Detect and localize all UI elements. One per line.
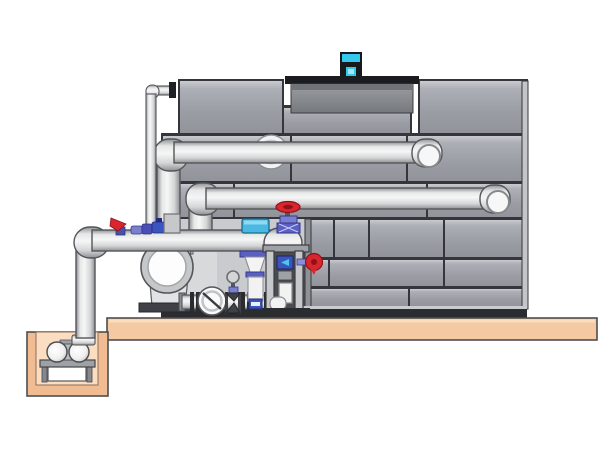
valve-column — [248, 277, 263, 301]
tower-right-trim — [522, 81, 528, 309]
blue-fitting — [142, 224, 152, 234]
pump-cylinder — [47, 342, 67, 362]
actuator-highlight — [244, 221, 267, 225]
base-box-stripe — [251, 302, 260, 306]
check-valve: Swing check valve — [198, 287, 226, 315]
upper-pipe-run — [174, 142, 438, 163]
panel — [445, 220, 522, 257]
flange — [241, 292, 245, 312]
shroud-inner-shadow — [291, 84, 413, 90]
instrument-stand: Instrument stand with flow device — [262, 245, 310, 314]
panel — [370, 220, 443, 257]
makeup-flange — [169, 82, 176, 98]
small-gate-valve: Small gate valve with handwheel — [225, 271, 241, 314]
platform: Equipment platform slab — [107, 318, 597, 340]
makeup-vertical — [146, 94, 156, 226]
panel — [310, 220, 333, 257]
valve-flange-bottom — [246, 272, 264, 277]
sump-pump: Submersible sump pump on stand — [40, 340, 95, 382]
panel — [445, 260, 522, 286]
pipe-bracket — [164, 214, 180, 233]
platform-highlight — [109, 320, 595, 323]
fan-motor: Cyan fan motor — [340, 52, 362, 80]
stand-leg — [87, 366, 92, 382]
panel — [420, 81, 522, 133]
panel — [330, 260, 443, 286]
fan-assembly: Fan shroud on tower deck Cyan fan motor — [285, 52, 419, 113]
panel — [410, 289, 522, 306]
side-handwheel-hub — [311, 259, 317, 265]
upper-elbow-face — [418, 145, 440, 167]
suction-downcomer — [76, 250, 95, 338]
illustration-canvas: Cooling tower casing with panel walls — [0, 0, 600, 450]
lower-pipe-run — [206, 188, 488, 209]
motor-top-band — [342, 54, 360, 62]
stand-base — [262, 308, 310, 314]
red-gate-valve: Gate valve with red handwheel — [276, 202, 300, 234]
pump-inlet-face — [148, 248, 186, 286]
shroud-rim — [285, 76, 419, 84]
flange — [190, 292, 194, 312]
stand-gauge-box — [278, 271, 292, 280]
lower-elbow-face — [487, 191, 509, 213]
stand-leg — [42, 366, 47, 382]
sump-pit: Sump pit Submersible sump pump on stand — [27, 332, 108, 396]
panel — [180, 81, 282, 133]
red-handwheel-hub — [283, 205, 293, 209]
purple-fitting — [131, 226, 142, 234]
motor-center-hi — [348, 69, 354, 74]
pump-stand-shelf — [48, 366, 86, 381]
valve-bonnet — [229, 287, 238, 293]
stand-top-plate — [40, 360, 95, 367]
small-handwheel — [227, 271, 239, 283]
pipe-fittings: Small valves and fittings on suction pip… — [110, 214, 180, 235]
panel — [310, 289, 408, 306]
cooling-tower-diagram: Cooling tower casing with panel walls — [0, 0, 600, 450]
panel — [335, 220, 368, 257]
